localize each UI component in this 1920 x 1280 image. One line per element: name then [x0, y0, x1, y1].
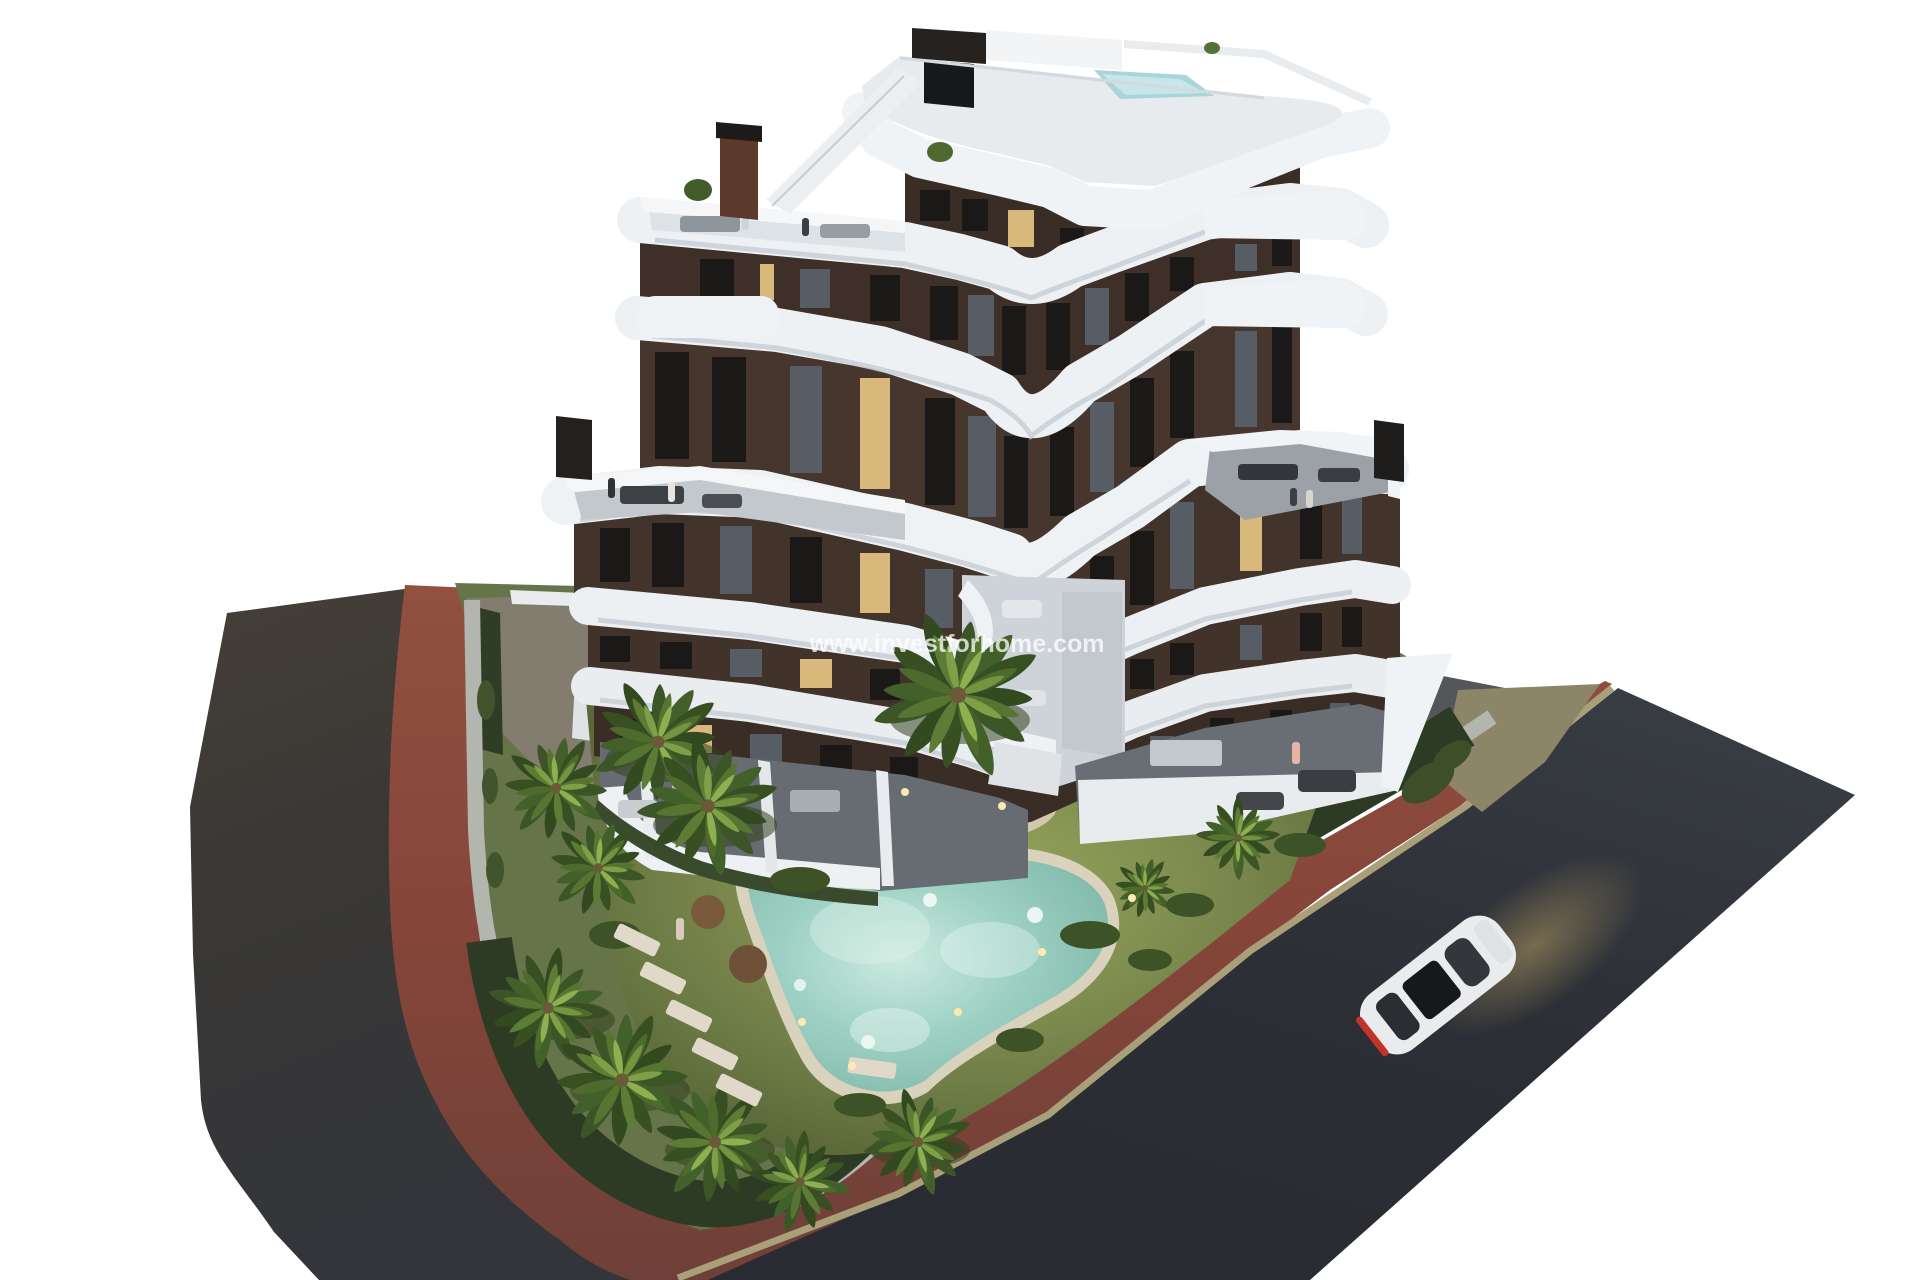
svg-text:www.investforhome.com: www.investforhome.com [809, 630, 1105, 658]
